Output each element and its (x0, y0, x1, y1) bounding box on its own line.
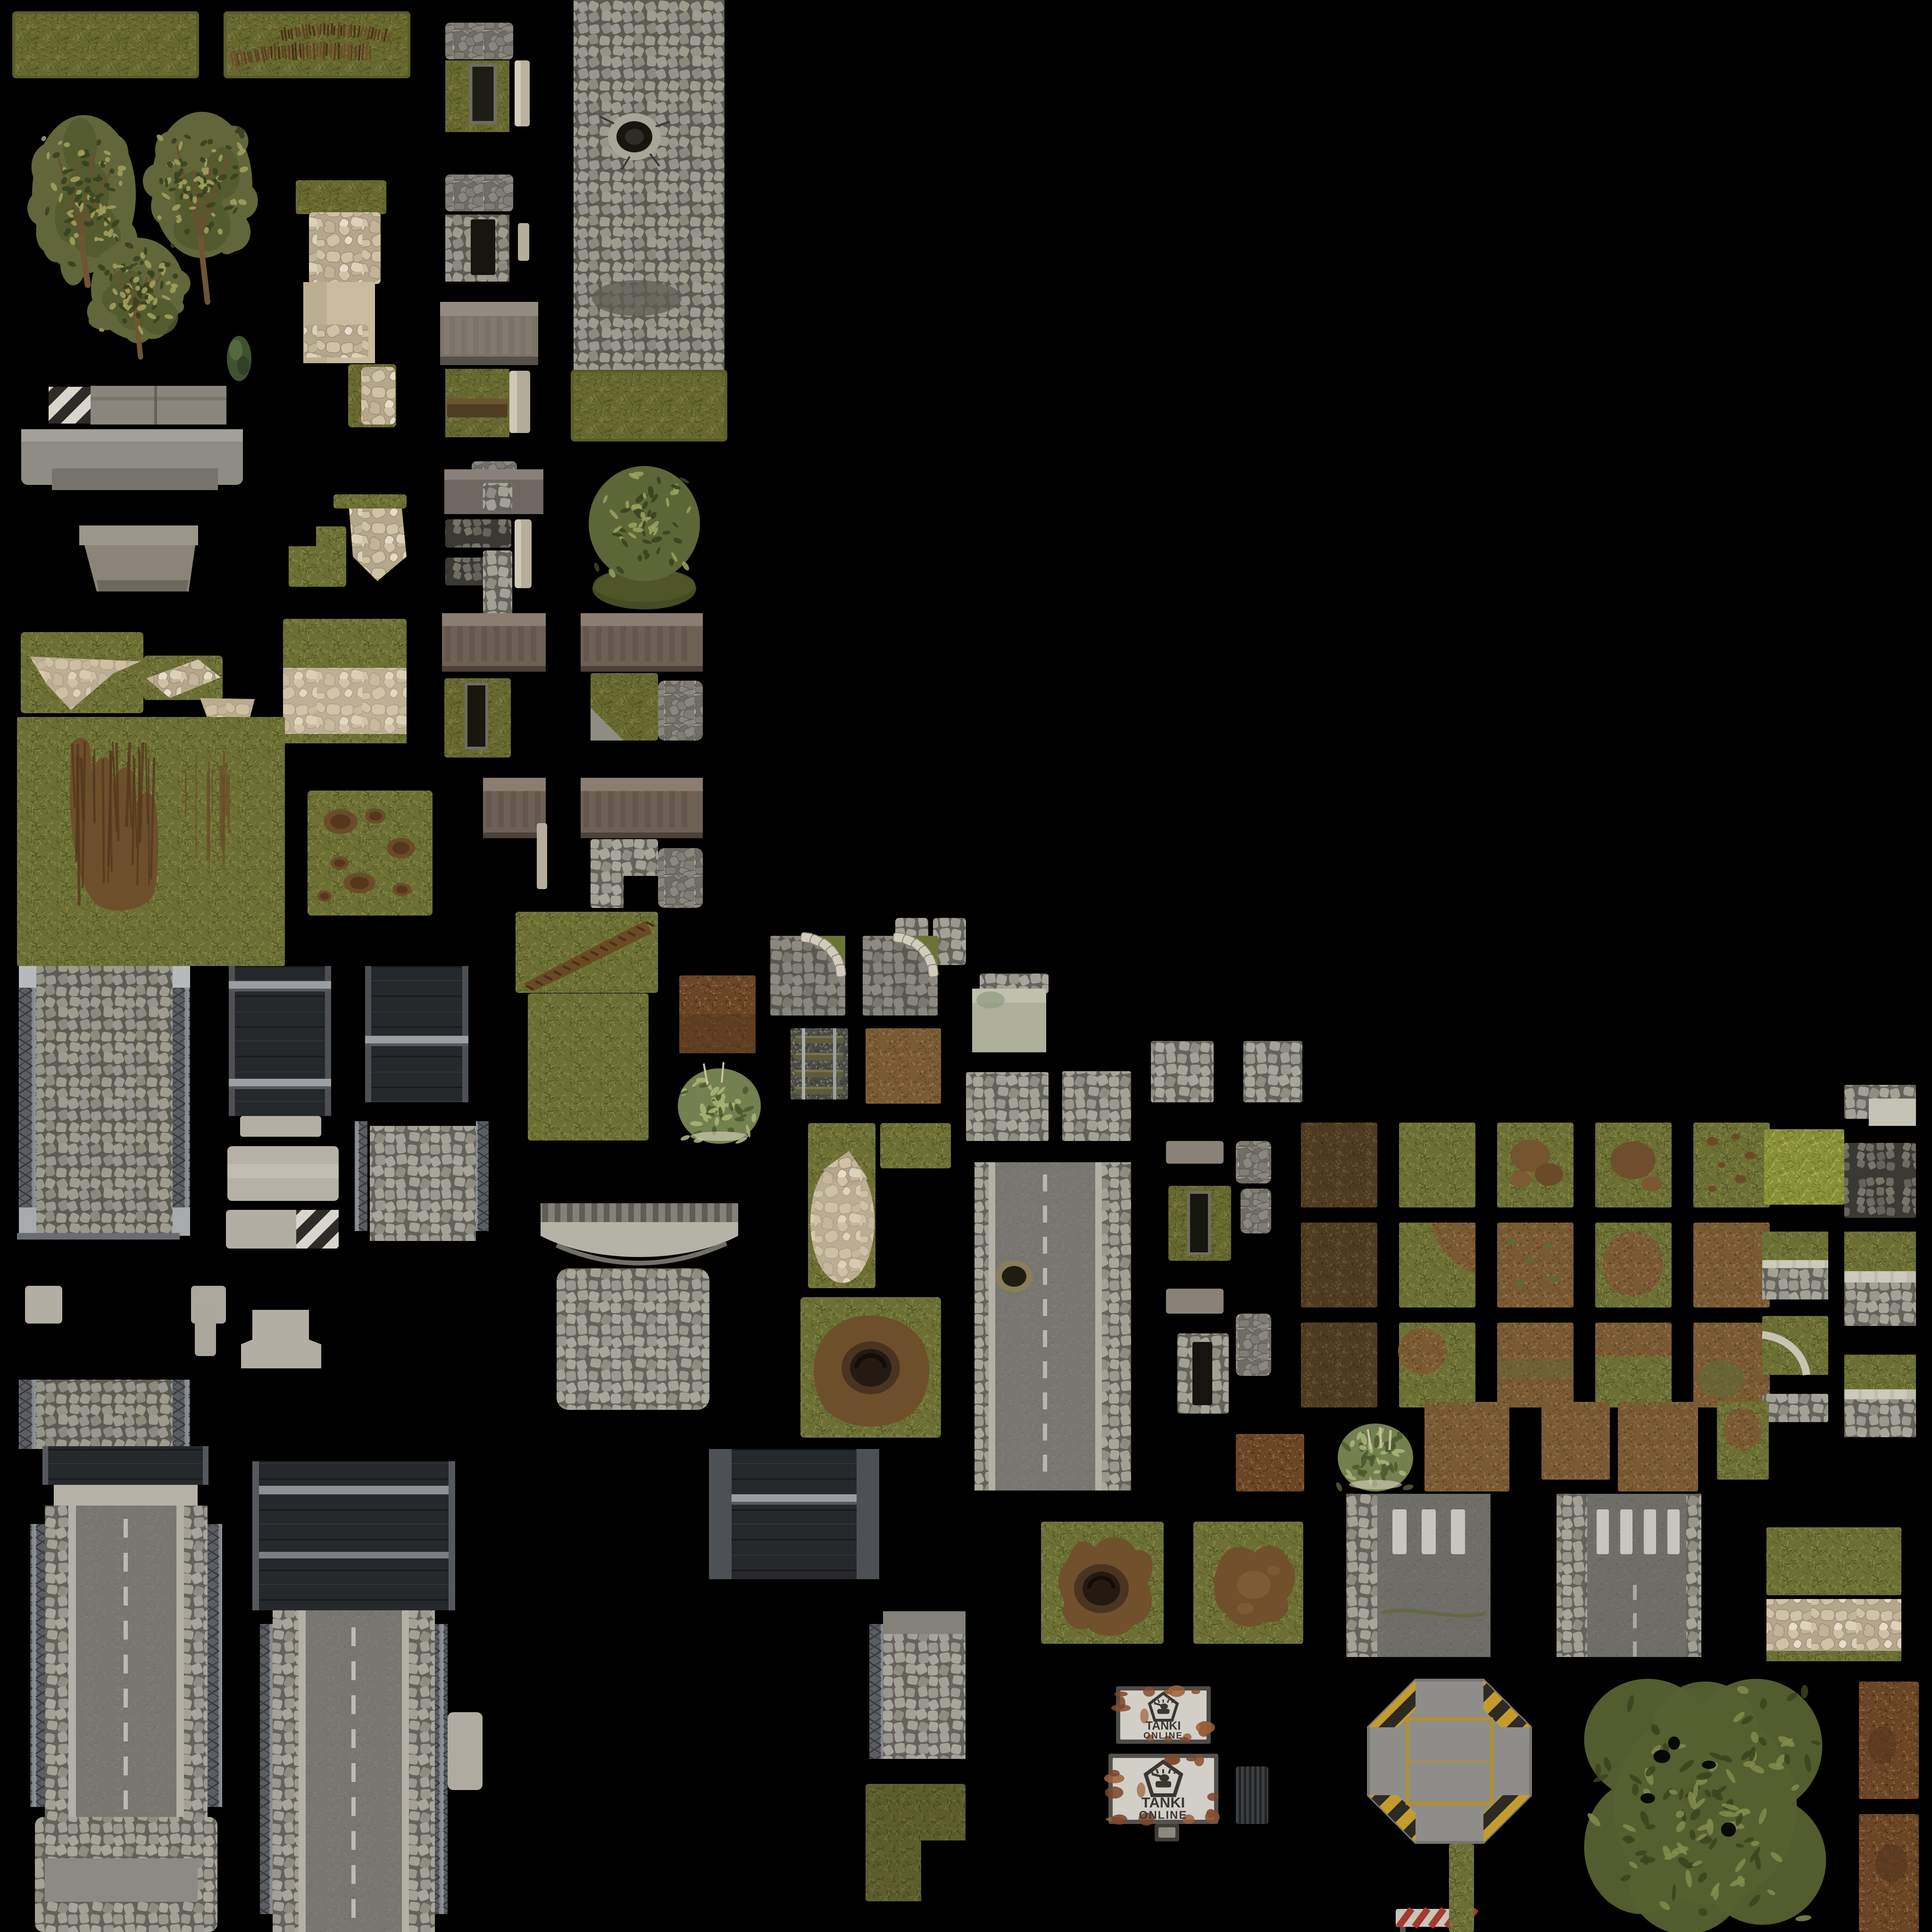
svg-text:ONLINE: ONLINE (1139, 1809, 1188, 1822)
svg-text:TANKI: TANKI (1146, 1719, 1181, 1732)
svg-text:TANKI: TANKI (1141, 1794, 1185, 1811)
svg-text:ONLINE: ONLINE (1143, 1731, 1183, 1741)
